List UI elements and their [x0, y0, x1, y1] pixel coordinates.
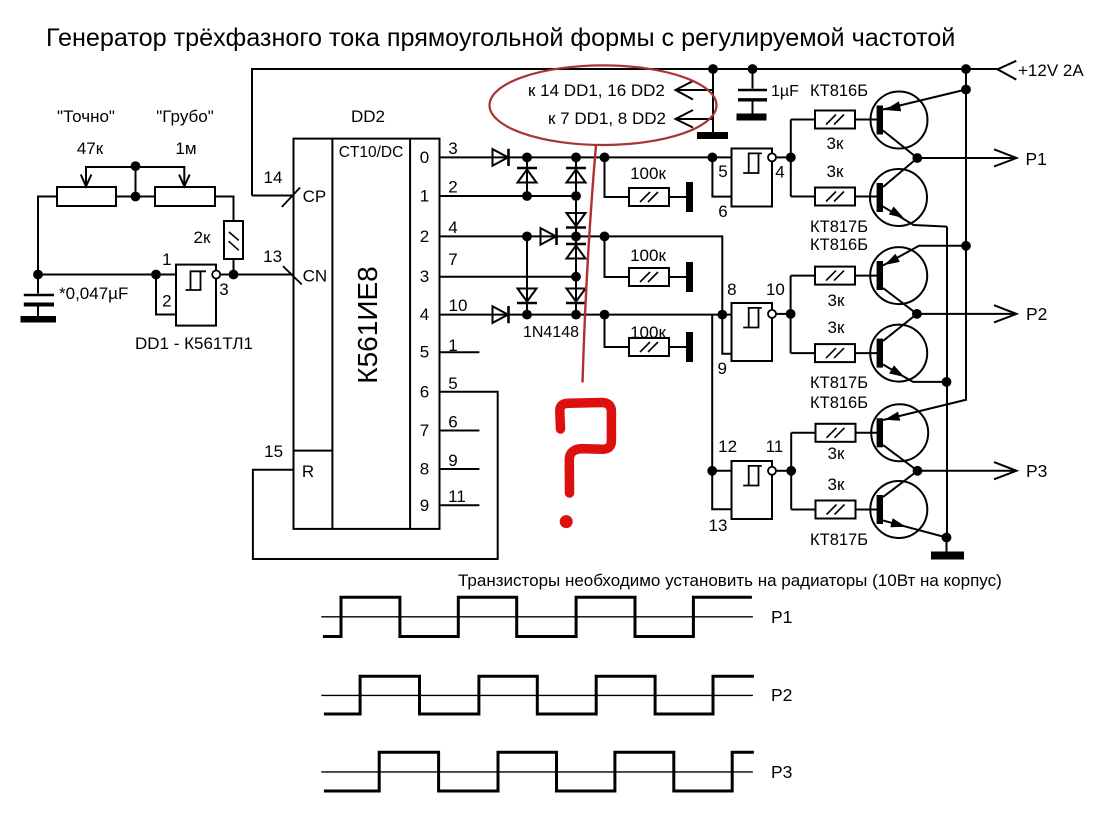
- svg-text:P2: P2: [771, 685, 792, 705]
- svg-text:13: 13: [709, 516, 728, 535]
- svg-text:P3: P3: [771, 762, 792, 782]
- svg-text:КТ816Б: КТ816Б: [810, 236, 868, 254]
- svg-text:Транзисторы необходимо установ: Транзисторы необходимо установить на рад…: [458, 571, 1002, 590]
- svg-text:2: 2: [420, 227, 429, 246]
- svg-text:К561ИЕ8: К561ИЕ8: [352, 266, 383, 383]
- svg-text:4: 4: [775, 163, 784, 182]
- svg-text:5: 5: [448, 374, 457, 393]
- svg-text:9: 9: [448, 451, 457, 470]
- svg-text:КТ816Б: КТ816Б: [810, 394, 868, 412]
- svg-text:P2: P2: [1026, 304, 1047, 324]
- svg-text:0: 0: [420, 148, 429, 167]
- svg-text:CP: CP: [303, 187, 327, 206]
- svg-text:3: 3: [448, 139, 457, 158]
- svg-text:1: 1: [420, 187, 429, 206]
- svg-text:КТ817Б: КТ817Б: [810, 374, 868, 392]
- svg-text:КТ816Б: КТ816Б: [810, 82, 868, 100]
- svg-text:8: 8: [727, 280, 736, 299]
- svg-text:3: 3: [219, 280, 228, 299]
- svg-text:2к: 2к: [194, 228, 211, 247]
- svg-text:5: 5: [718, 162, 727, 181]
- svg-text:"Грубо": "Грубо": [156, 107, 213, 126]
- svg-text:6: 6: [420, 382, 429, 401]
- svg-text:+12V 2A: +12V 2A: [1018, 61, 1084, 80]
- svg-text:CT10/DC: CT10/DC: [339, 144, 404, 161]
- svg-text:10: 10: [766, 280, 785, 299]
- svg-text:КТ817Б: КТ817Б: [810, 218, 868, 236]
- svg-text:7: 7: [420, 421, 429, 440]
- svg-text:2: 2: [448, 178, 457, 197]
- svg-text:3к: 3к: [827, 134, 844, 153]
- svg-text:3к: 3к: [828, 318, 845, 337]
- svg-text:4: 4: [448, 218, 457, 237]
- svg-text:1м: 1м: [175, 139, 196, 158]
- svg-text:6: 6: [448, 413, 457, 432]
- svg-text:6: 6: [718, 202, 727, 221]
- svg-text:12: 12: [718, 437, 737, 456]
- svg-text:3к: 3к: [828, 291, 845, 310]
- svg-text:P1: P1: [1026, 149, 1047, 169]
- svg-text:DD1 - К561ТЛ1: DD1 - К561ТЛ1: [135, 334, 253, 353]
- svg-text:КТ817Б: КТ817Б: [810, 531, 868, 549]
- svg-text:CN: CN: [303, 267, 328, 286]
- svg-text:Генератор трёхфазного тока пря: Генератор трёхфазного тока прямоугольной…: [46, 24, 955, 52]
- svg-text:14: 14: [264, 168, 283, 187]
- svg-text:R: R: [302, 462, 314, 481]
- svg-text:P1: P1: [771, 607, 792, 627]
- svg-text:к 7 DD1, 8 DD2: к 7 DD1, 8 DD2: [548, 109, 666, 128]
- svg-text:P3: P3: [1026, 461, 1047, 481]
- svg-text:7: 7: [448, 250, 457, 269]
- svg-text:47к: 47к: [77, 139, 104, 158]
- svg-text:2: 2: [162, 292, 171, 311]
- svg-text:5: 5: [420, 343, 429, 362]
- svg-text:100к: 100к: [630, 246, 666, 265]
- svg-text:4: 4: [420, 305, 429, 324]
- svg-text:3: 3: [420, 267, 429, 286]
- svg-text:11: 11: [766, 437, 784, 456]
- svg-text:13: 13: [263, 247, 282, 266]
- svg-text:1N4148: 1N4148: [523, 324, 579, 341]
- svg-text:15: 15: [264, 442, 283, 461]
- svg-text:1: 1: [162, 250, 171, 269]
- svg-text:10: 10: [449, 296, 468, 315]
- svg-text:3к: 3к: [827, 162, 844, 181]
- svg-text:к 14 DD1, 16 DD2: к 14 DD1, 16 DD2: [528, 81, 665, 100]
- svg-text:*0,047µF: *0,047µF: [59, 284, 128, 303]
- svg-text:9: 9: [717, 359, 726, 378]
- svg-text:100к: 100к: [630, 164, 666, 183]
- svg-text:"Точно": "Точно": [57, 107, 115, 126]
- svg-text:DD2: DD2: [351, 107, 385, 126]
- svg-text:3к: 3к: [828, 444, 845, 463]
- svg-text:11: 11: [448, 487, 466, 506]
- svg-text:3к: 3к: [828, 475, 845, 494]
- svg-text:8: 8: [420, 460, 429, 479]
- svg-text:1µF: 1µF: [771, 83, 799, 100]
- svg-text:9: 9: [420, 496, 429, 515]
- svg-text:100к: 100к: [630, 323, 666, 342]
